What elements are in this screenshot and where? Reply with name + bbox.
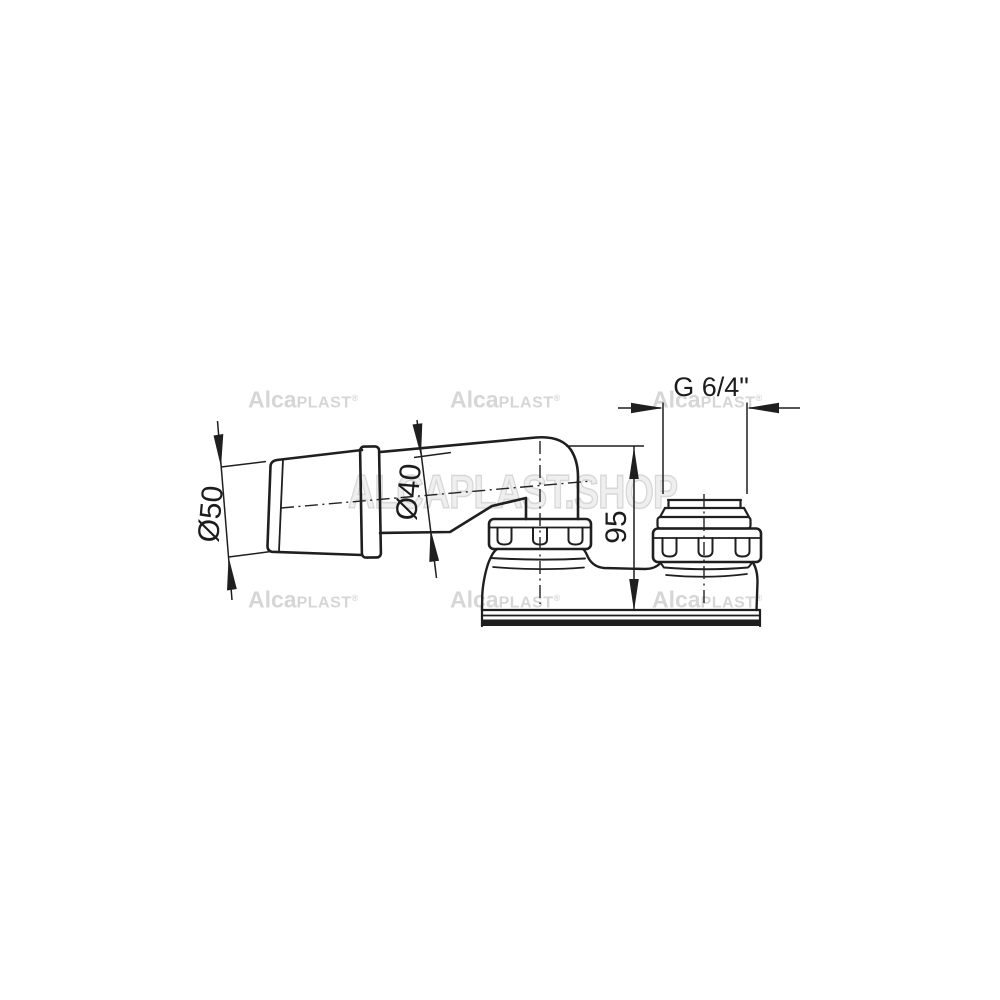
technical-drawing-canvas: AlcaPLAST® AlcaPLAST® AlcaPLAST® AlcaPLA… <box>0 0 1000 1000</box>
arrowhead <box>214 434 224 467</box>
height-95-label: 95 <box>600 510 633 543</box>
arrowhead <box>747 403 779 413</box>
dimension-dia50: Ø50 <box>192 421 271 600</box>
inlet-sleeve <box>268 446 381 557</box>
thread-label: G 6/4" <box>673 372 749 402</box>
base-right-wall <box>753 562 758 610</box>
flange-bottom-band <box>482 620 760 627</box>
base-saddle <box>583 549 661 569</box>
fitting-drawing: Ø50 Ø40 95 G 6/4" <box>0 0 1000 1000</box>
dia50-label: Ø50 <box>192 484 230 543</box>
extension-lines <box>663 403 747 495</box>
arrowhead <box>227 557 237 591</box>
right-union-nut <box>653 529 761 563</box>
sleeve-collar <box>360 446 381 557</box>
dimension-thread: G 6/4" <box>618 372 800 494</box>
nut-castellations <box>663 538 750 557</box>
base-left-ring <box>491 558 586 560</box>
arrowhead <box>631 403 663 413</box>
extension-line <box>414 453 451 458</box>
arrowhead <box>429 529 439 562</box>
drain-base <box>482 549 758 610</box>
centerlines <box>281 441 704 607</box>
base-left-ring2 <box>493 567 584 569</box>
sleeve-rim-line <box>279 460 283 552</box>
arrowhead <box>413 423 423 456</box>
extension-lines <box>221 462 271 558</box>
base-right-ring2 <box>666 574 747 577</box>
base-flange <box>482 610 760 626</box>
dimension-dia40: Ø40 <box>390 420 451 578</box>
arrowhead <box>629 579 639 611</box>
arrowhead <box>629 447 639 479</box>
pipe-axis-centerline <box>281 481 592 508</box>
dia40-label: Ø40 <box>390 462 428 521</box>
